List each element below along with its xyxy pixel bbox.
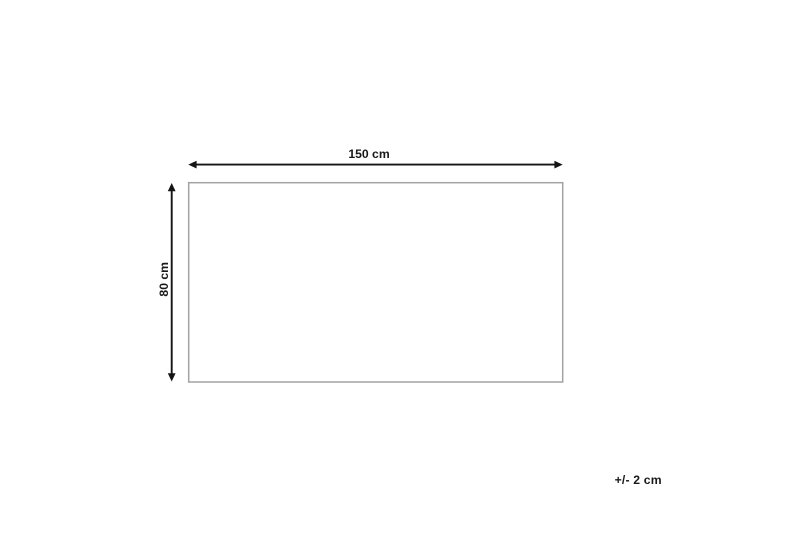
svg-text:80 cm: 80 cm	[157, 262, 171, 297]
svg-text:150 cm: 150 cm	[348, 147, 389, 161]
svg-text:+/- 2 cm: +/- 2 cm	[615, 473, 662, 487]
